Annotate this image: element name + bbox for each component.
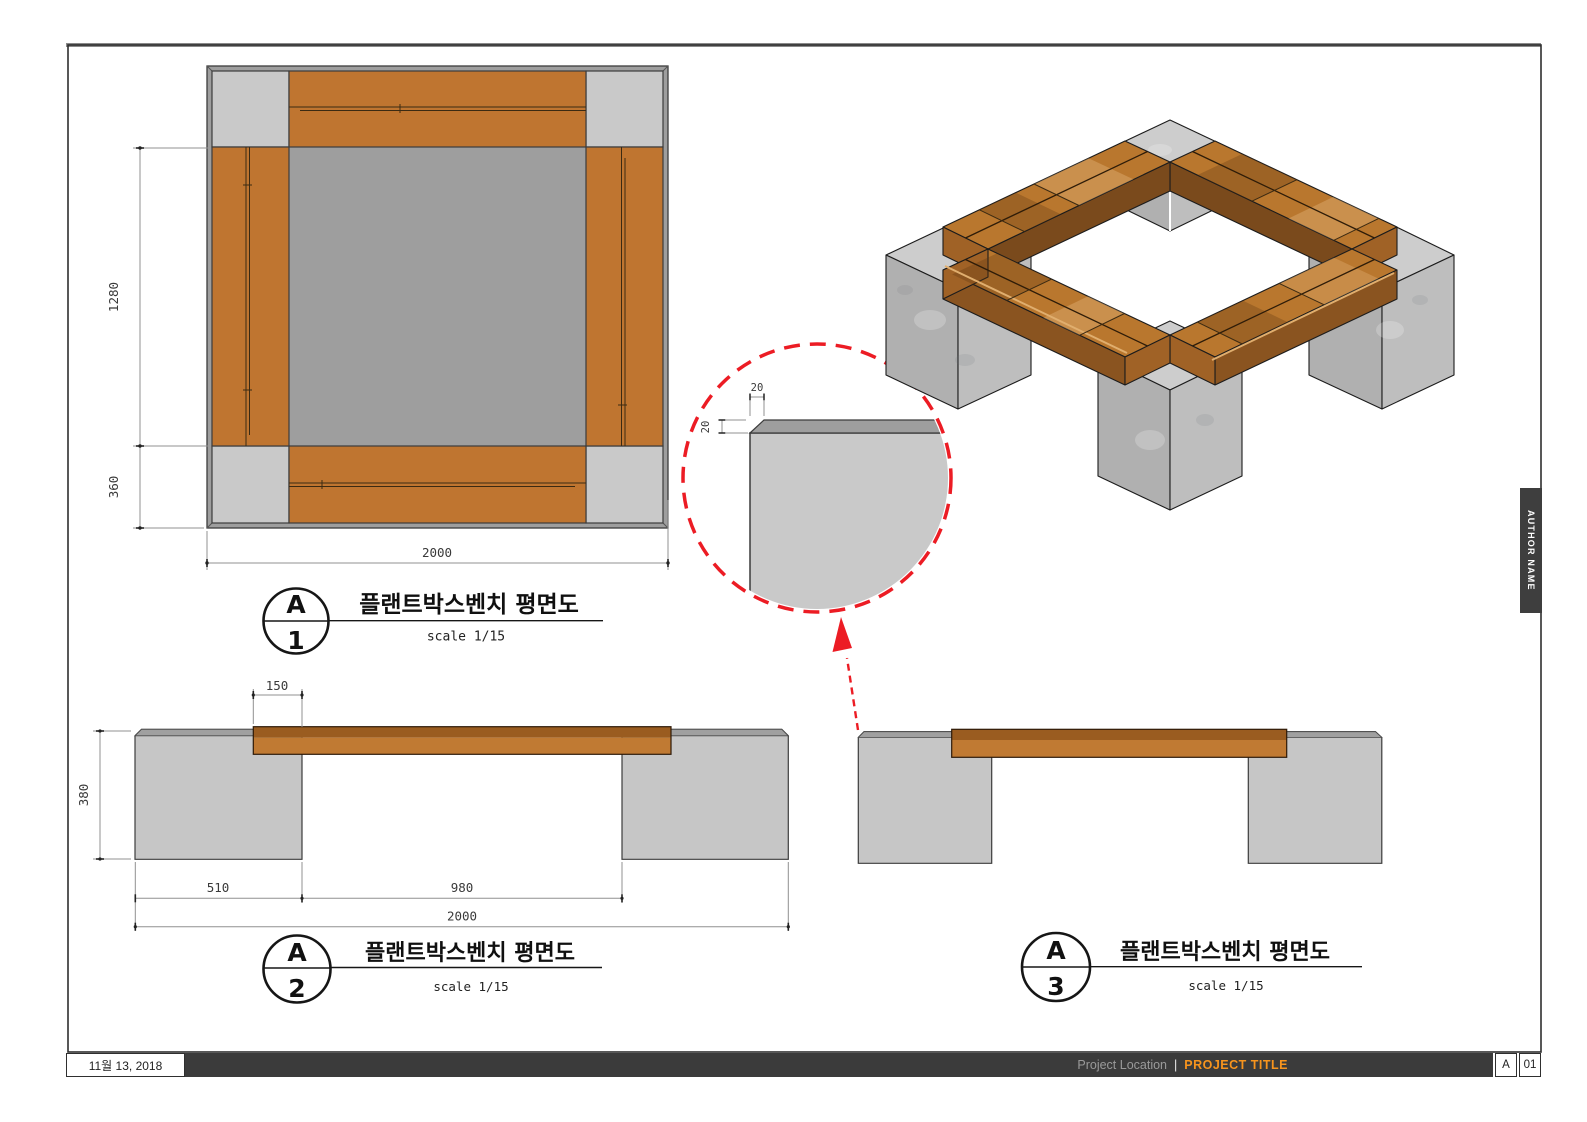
sheet-number-cell: 01 [1519, 1053, 1541, 1077]
detail-block [750, 433, 980, 643]
plan-wood-band [289, 446, 586, 523]
view-scale: scale 1/15 [427, 630, 505, 645]
date-cell: 11월 13, 2018 [66, 1053, 185, 1077]
title-bar: 11월 13, 2018 Project Location | PROJECT … [66, 1053, 1541, 1077]
dim-leg-width: 510 [207, 880, 230, 895]
plan-wood-band [212, 147, 289, 446]
marker-number: 2 [288, 974, 305, 1003]
separator: | [1174, 1058, 1177, 1072]
plan-view: 1280 360 2000 [106, 66, 670, 570]
iso-3d-view [886, 120, 1454, 510]
front-elevation: 150 380 510 980 2000 [76, 678, 790, 931]
dim-overall-width: 2000 [422, 545, 452, 560]
view-title: 플랜트박스벤치 평면도 [359, 592, 579, 618]
elevation-plank [253, 727, 671, 738]
dim-overall-width: 2000 [447, 909, 477, 924]
marker-number: 3 [1047, 972, 1064, 1001]
dim-bench-height: 380 [76, 784, 91, 807]
plan-corner-block [586, 446, 663, 523]
view-title: 플랜트박스벤치 평면도 [365, 941, 575, 966]
detail-chamfer [750, 420, 960, 433]
side-elevation [858, 729, 1382, 863]
dim-clear-span: 980 [451, 880, 474, 895]
side-elevation-label: A 3 플랜트박스벤치 평면도 scale 1/15 [1022, 933, 1362, 1001]
dim-chamfer-depth: 20 [700, 421, 712, 434]
elevation-plank [952, 729, 1287, 740]
detail-leader-arrow [833, 617, 859, 730]
project-title: PROJECT TITLE [1184, 1058, 1288, 1072]
drawing-sheet: 1280 360 2000 A 1 플랜트박스벤치 평면도 scale 1/15 [0, 0, 1587, 1122]
plan-wood-band [289, 71, 586, 147]
sheet-canvas: 1280 360 2000 A 1 플랜트박스벤치 평면도 scale 1/15 [0, 0, 1587, 1122]
dim-chamfer-width: 20 [751, 382, 764, 394]
marker-number: 1 [287, 626, 304, 655]
front-elevation-label: A 2 플랜트박스벤치 평면도 scale 1/15 [264, 936, 603, 1004]
view-scale: scale 1/15 [433, 979, 508, 994]
dim-corner-block: 360 [106, 476, 121, 499]
plan-corner-block [586, 71, 663, 147]
plan-corner-block [212, 446, 289, 523]
view-title: 플랜트박스벤치 평면도 [1120, 940, 1330, 965]
dim-inner-height: 1280 [106, 282, 121, 312]
project-location: Project Location [1077, 1058, 1167, 1072]
plan-view-label: A 1 플랜트박스벤치 평면도 scale 1/15 [264, 589, 604, 656]
dim-seat-overhang: 150 [266, 678, 289, 693]
view-scale: scale 1/15 [1188, 978, 1263, 993]
plan-corner-block [212, 71, 289, 147]
sheet-letter-cell: A [1495, 1053, 1517, 1077]
marker-letter: A [286, 590, 306, 619]
marker-letter: A [287, 938, 307, 967]
author-name-tab: AUTHOR NAME [1520, 488, 1542, 613]
marker-letter: A [1046, 936, 1066, 965]
project-bar: Project Location | PROJECT TITLE [185, 1053, 1493, 1077]
